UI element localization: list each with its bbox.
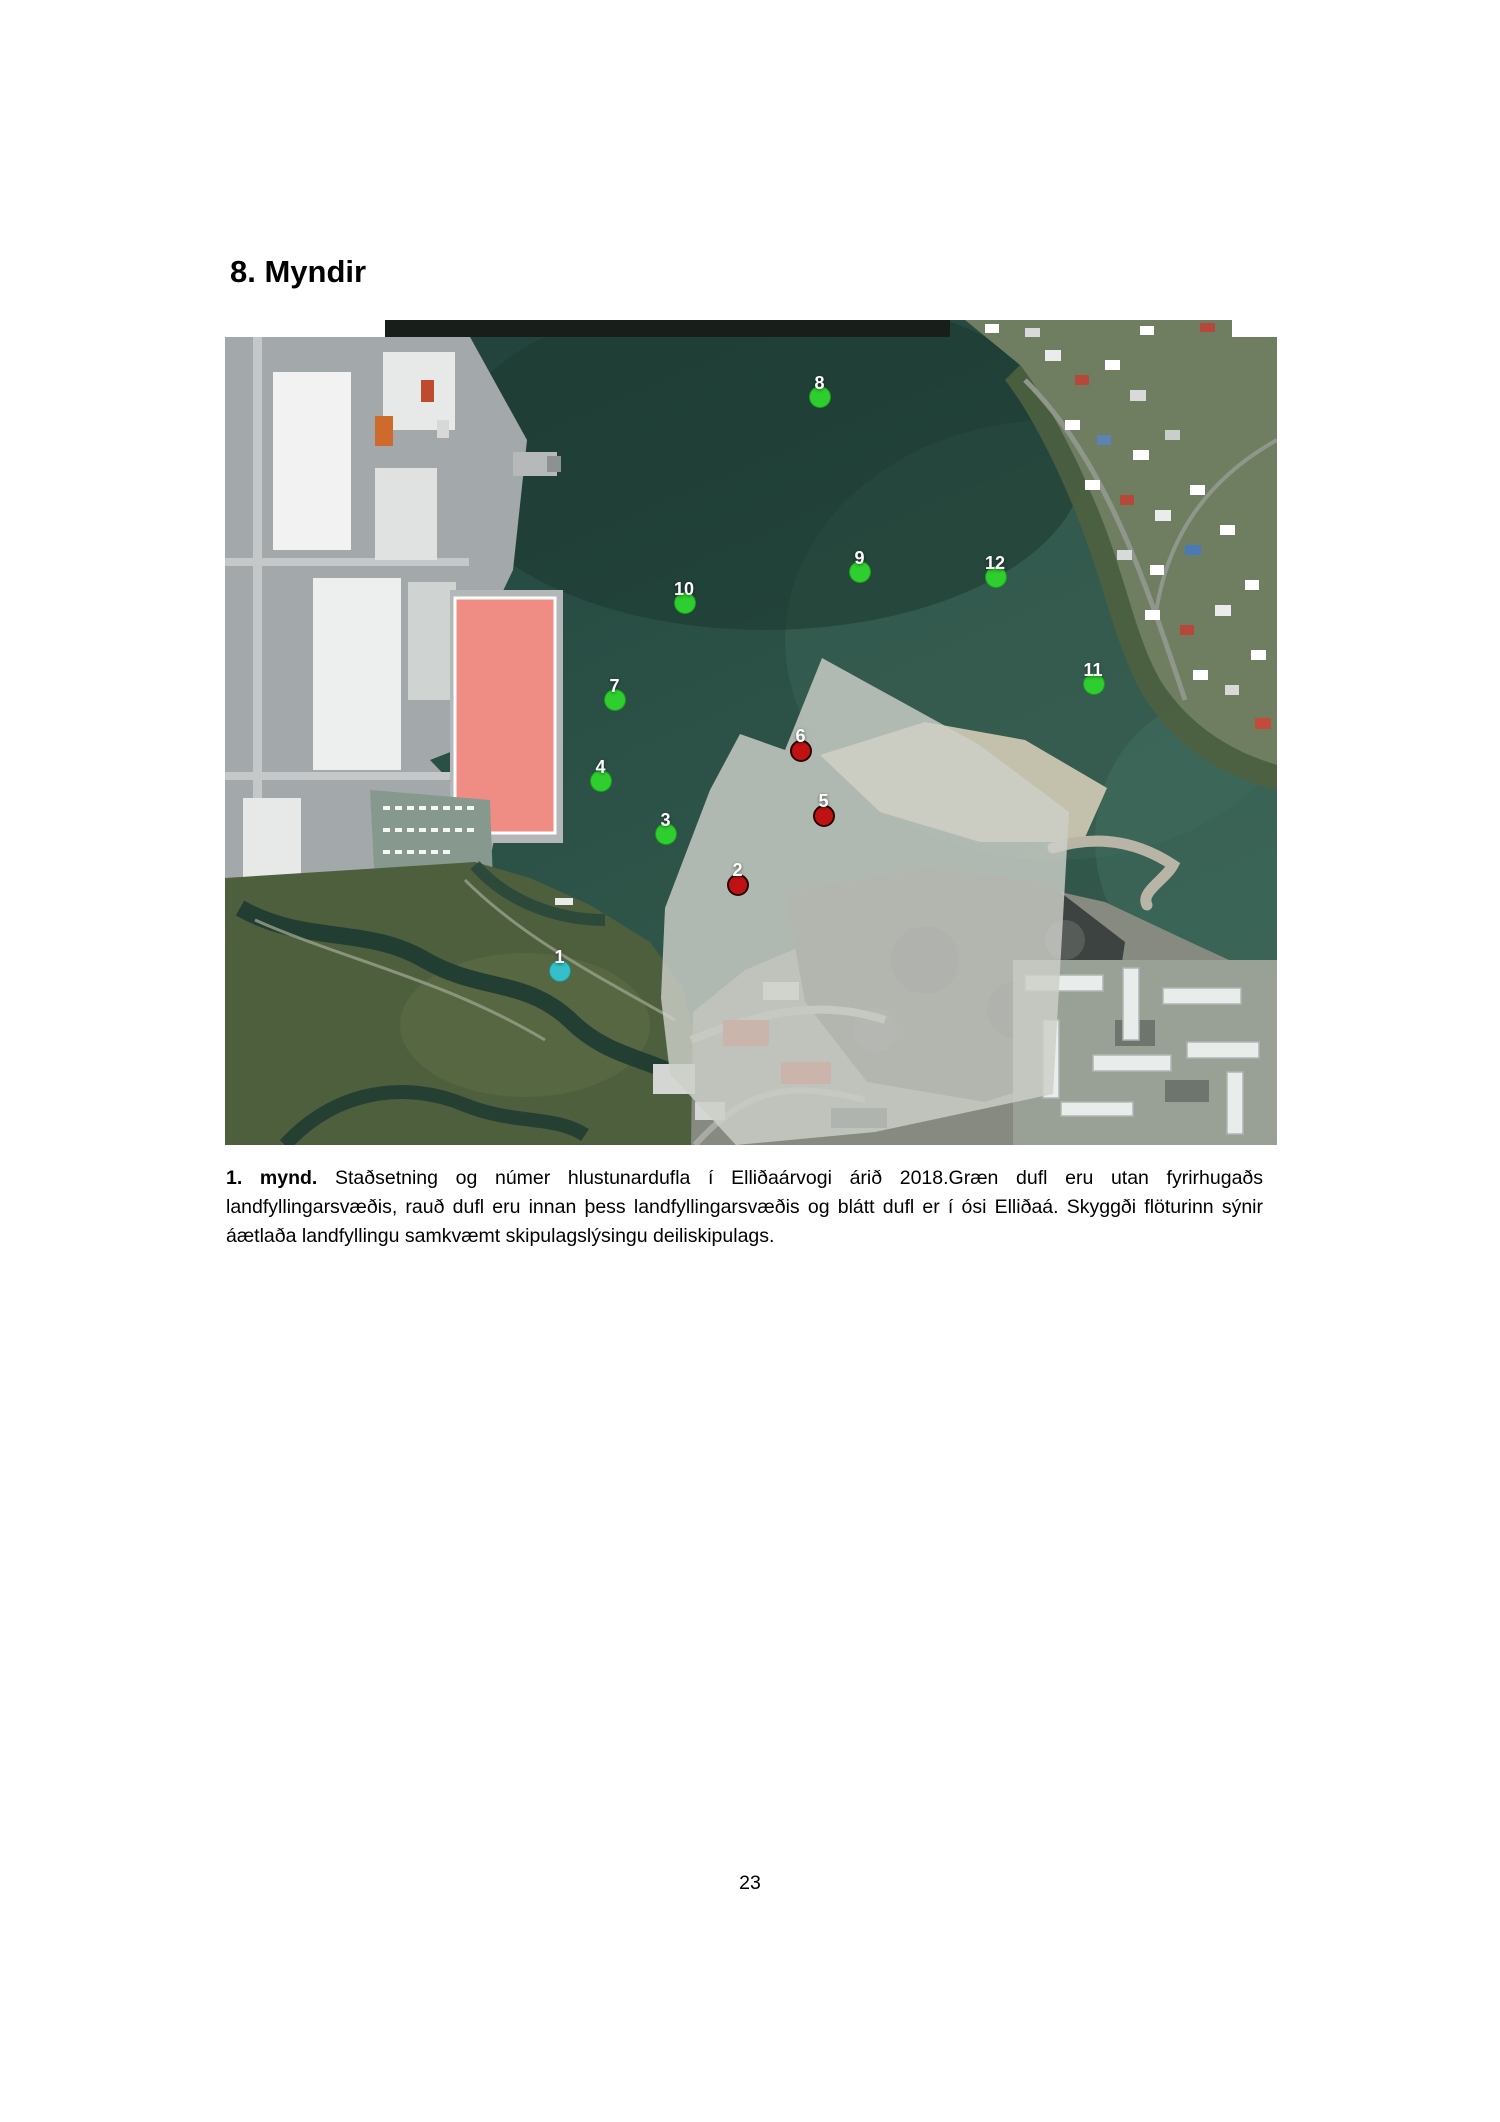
- buoy-marker-1: 1: [549, 960, 571, 982]
- figure-map: 123456789101112: [225, 320, 1277, 1145]
- buoy-marker-8: 8: [809, 386, 831, 408]
- buoy-marker-label: 8: [814, 373, 824, 393]
- buoy-marker-label: 1: [554, 947, 564, 967]
- buoy-marker-2: 2: [727, 874, 749, 896]
- buoy-marker-4: 4: [590, 770, 612, 792]
- document-page: 8. Myndir: [0, 0, 1500, 2122]
- buoy-marker-3: 3: [655, 823, 677, 845]
- buoy-marker-9: 9: [849, 561, 871, 583]
- buoy-marker-12: 12: [985, 566, 1007, 588]
- buoy-marker-label: 3: [660, 810, 670, 830]
- buoy-marker-label: 4: [595, 757, 605, 777]
- buoy-marker-5: 5: [813, 805, 835, 827]
- figure-caption-label: 1. mynd.: [226, 1167, 317, 1189]
- buoy-marker-label: 6: [795, 726, 805, 746]
- buoy-marker-11: 11: [1083, 673, 1105, 695]
- buoy-marker-10: 10: [674, 592, 696, 614]
- buoy-marker-label: 11: [1084, 660, 1103, 680]
- section-heading: 8. Myndir: [230, 254, 366, 290]
- buoy-markers-layer: 123456789101112: [225, 320, 1277, 1145]
- figure-caption-text: Staðsetning og númer hlustunardufla í El…: [226, 1167, 1263, 1247]
- buoy-marker-6: 6: [790, 740, 812, 762]
- figure-caption: 1. mynd. Staðsetning og númer hlustunard…: [226, 1164, 1263, 1251]
- buoy-marker-label: 5: [818, 791, 828, 811]
- buoy-marker-7: 7: [604, 689, 626, 711]
- buoy-marker-label: 9: [854, 548, 864, 568]
- buoy-marker-label: 2: [732, 860, 742, 880]
- page-number: 23: [0, 1872, 1500, 1895]
- buoy-marker-label: 7: [609, 676, 619, 696]
- buoy-marker-label: 10: [674, 579, 694, 599]
- buoy-marker-label: 12: [985, 553, 1005, 573]
